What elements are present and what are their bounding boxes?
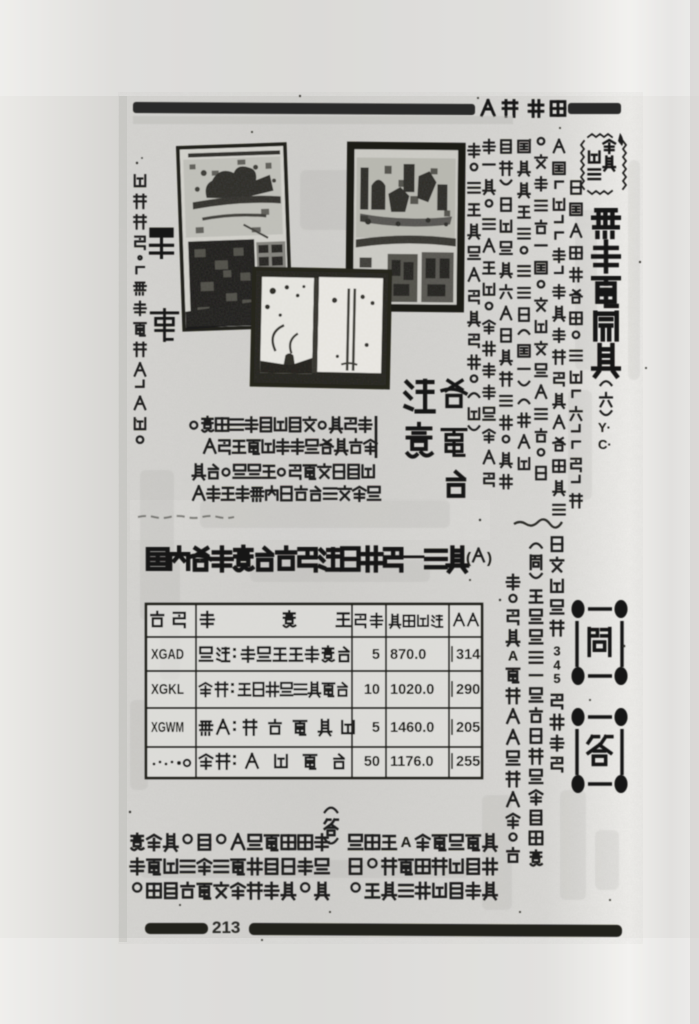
svg-text:205: 205 bbox=[456, 720, 480, 736]
svg-text:213: 213 bbox=[212, 918, 240, 937]
svg-text:XGWM: XGWM bbox=[151, 720, 184, 736]
svg-text:Y·: Y· bbox=[598, 420, 611, 435]
svg-text:): ) bbox=[487, 550, 492, 567]
svg-text:870.0: 870.0 bbox=[390, 647, 426, 663]
svg-text:A: A bbox=[508, 648, 518, 664]
svg-text:10: 10 bbox=[364, 682, 380, 698]
svg-text:1020.0: 1020.0 bbox=[390, 682, 434, 698]
svg-text:1460.0: 1460.0 bbox=[390, 720, 434, 736]
svg-text:290: 290 bbox=[456, 682, 480, 698]
svg-text:(: ( bbox=[466, 550, 471, 567]
svg-text:5: 5 bbox=[553, 671, 560, 686]
svg-text:314: 314 bbox=[456, 647, 480, 663]
svg-text:XGAD: XGAD bbox=[151, 647, 184, 663]
svg-text:5: 5 bbox=[372, 720, 380, 736]
svg-text:50: 50 bbox=[364, 754, 380, 770]
svg-text:5: 5 bbox=[372, 647, 380, 663]
svg-text:255: 255 bbox=[456, 754, 480, 770]
svg-text:A: A bbox=[401, 834, 412, 851]
svg-text:1176.0: 1176.0 bbox=[390, 754, 434, 770]
svg-text:XGKL: XGKL bbox=[151, 682, 184, 698]
svg-text:C·: C· bbox=[598, 437, 612, 452]
